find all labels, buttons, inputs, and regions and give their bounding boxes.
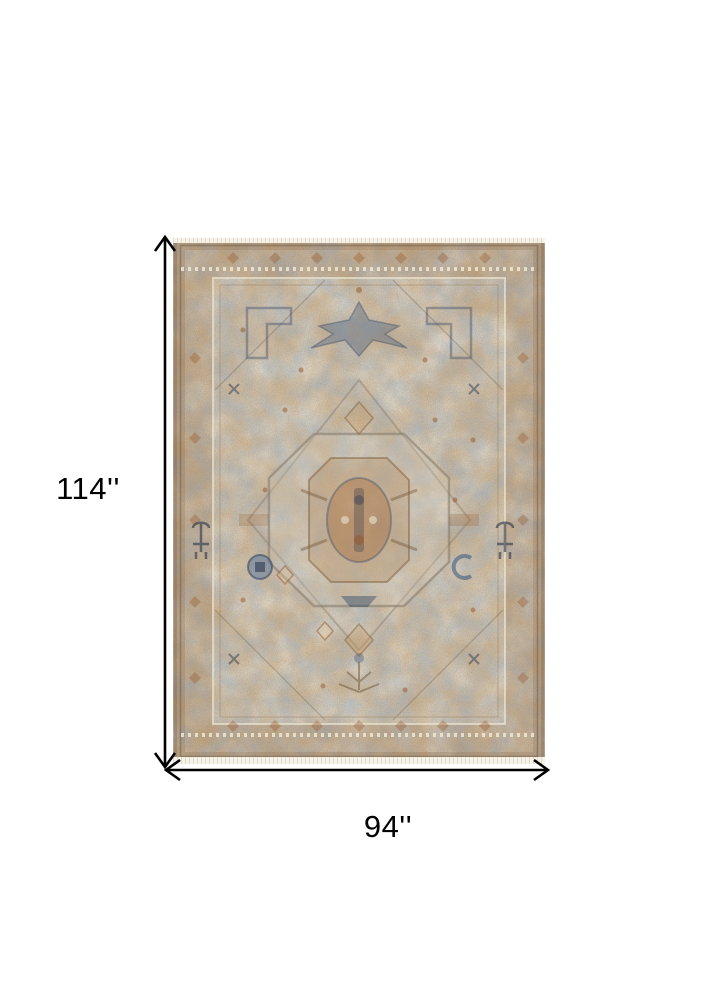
height-arrow <box>149 233 181 771</box>
rug-dimension-diagram: 114'' 94'' <box>0 0 719 1000</box>
width-dimension-label: 94'' <box>338 808 438 846</box>
width-arrow <box>154 754 556 786</box>
height-dimension-label: 114'' <box>38 470 138 508</box>
rug-image <box>173 238 545 764</box>
